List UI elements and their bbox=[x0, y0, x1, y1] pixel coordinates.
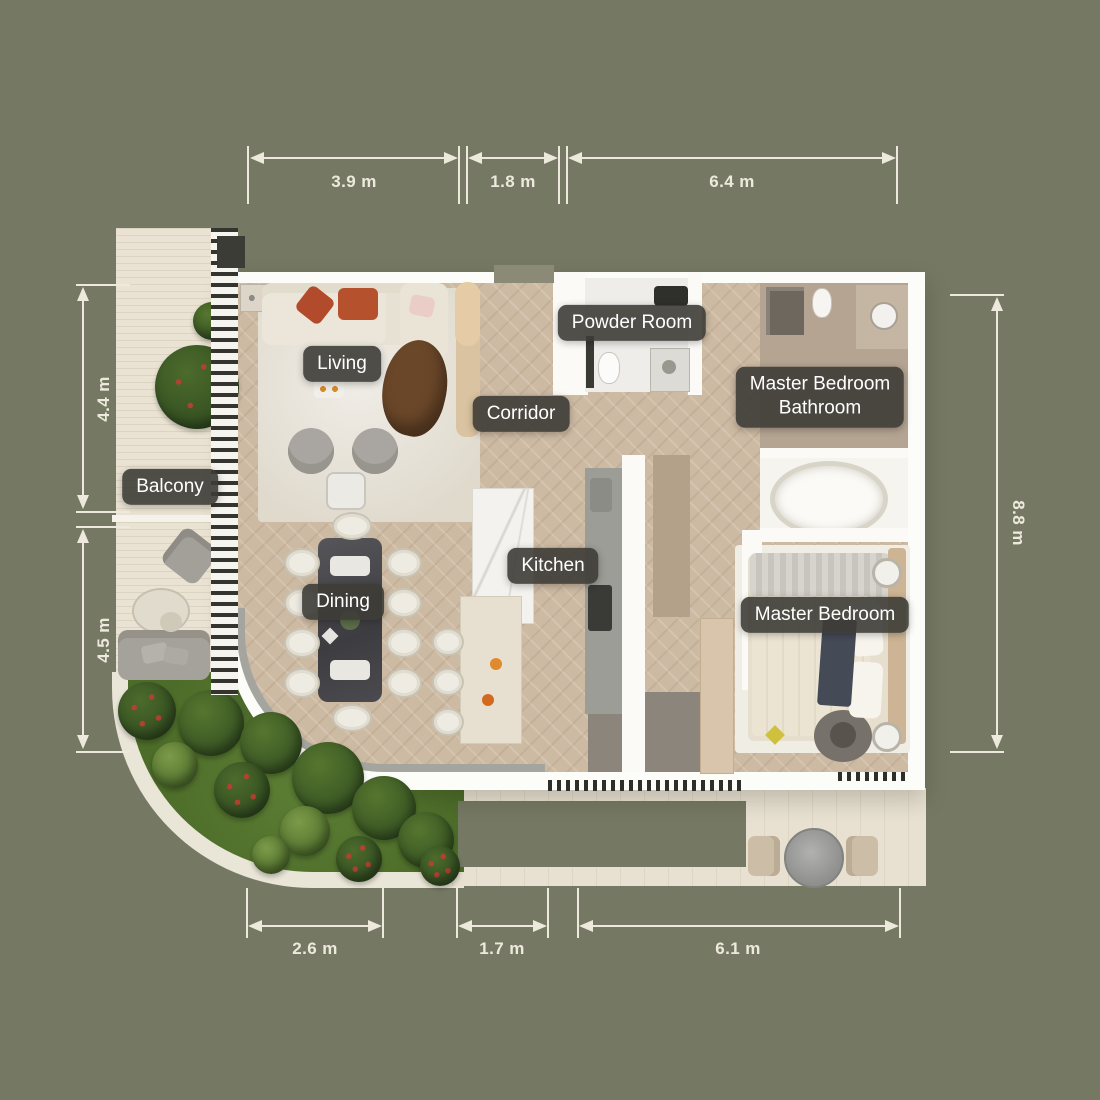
bathroom-shower-glass bbox=[766, 287, 804, 335]
arrowhead bbox=[885, 920, 899, 932]
room-label-master-bedroom: Master Bedroom bbox=[741, 597, 909, 633]
kitchen-stool bbox=[432, 628, 464, 656]
arrowhead bbox=[77, 529, 89, 543]
terrace-table bbox=[784, 828, 844, 888]
louver-dark-block bbox=[217, 236, 245, 268]
hallway-cabinet bbox=[700, 618, 734, 774]
kitchen-island-lower bbox=[460, 596, 522, 744]
balcony-divider-wall bbox=[112, 515, 225, 522]
dining-chair bbox=[284, 548, 320, 578]
room-label-text: Dining bbox=[316, 591, 370, 612]
room-label-dining: Dining bbox=[302, 584, 384, 620]
entry-threshold bbox=[494, 265, 554, 283]
arrowhead bbox=[248, 920, 262, 932]
dim-line-3-9m bbox=[252, 157, 456, 159]
dim-label-right-0: 8.8 m bbox=[1008, 500, 1028, 545]
dim-extension-line bbox=[558, 146, 560, 204]
arrowhead bbox=[991, 735, 1003, 749]
vanity-basin bbox=[870, 302, 898, 330]
sofa-pillow-rust bbox=[338, 288, 378, 320]
toilet bbox=[598, 352, 620, 384]
dim-line-2-6m bbox=[250, 925, 380, 927]
dim-label-bottom-0: 2.6 m bbox=[292, 939, 337, 959]
room-label-text-line1: Master Bedroom bbox=[750, 373, 890, 397]
dining-chair bbox=[386, 548, 422, 578]
dim-extension-line bbox=[899, 888, 901, 938]
garden-tree bbox=[118, 682, 176, 740]
dim-label-left-0: 4.4 m bbox=[94, 376, 114, 421]
dim-extension-line bbox=[76, 284, 130, 286]
louver-slat-wall bbox=[211, 228, 238, 695]
room-label-text: Master Bedroom bbox=[755, 604, 895, 625]
dim-extension-line bbox=[950, 294, 1004, 296]
kitchen-stool bbox=[432, 708, 464, 736]
dining-chair bbox=[332, 512, 372, 540]
room-label-text: Corridor bbox=[487, 403, 556, 424]
room-label-balcony: Balcony bbox=[122, 469, 218, 505]
dining-chair bbox=[284, 668, 320, 698]
room-label-text: Living bbox=[317, 353, 367, 374]
garden-tree bbox=[214, 762, 270, 818]
arrowhead bbox=[544, 152, 558, 164]
room-label-text-line2: Bathroom bbox=[750, 397, 890, 421]
dim-extension-line bbox=[76, 751, 130, 753]
terrace-opening bbox=[458, 801, 746, 867]
dim-line-6-1m bbox=[581, 925, 897, 927]
dim-extension-line bbox=[950, 751, 1004, 753]
garden-bush bbox=[252, 836, 290, 874]
garden-tree bbox=[336, 836, 382, 882]
balcony-side-table bbox=[160, 612, 182, 632]
dining-chair bbox=[386, 668, 422, 698]
powder-door-strip bbox=[586, 336, 594, 388]
dining-place-setting bbox=[330, 556, 370, 576]
dim-line-4-5m bbox=[82, 531, 84, 747]
dining-chair bbox=[386, 588, 422, 618]
kitchen-fruit bbox=[490, 658, 502, 670]
kitchen-stool bbox=[432, 668, 464, 696]
washbasin bbox=[654, 286, 688, 306]
media-console bbox=[314, 380, 344, 398]
arrowhead bbox=[568, 152, 582, 164]
garden-tree bbox=[420, 846, 460, 886]
dim-label-top-1: 1.8 m bbox=[490, 172, 535, 192]
arrowhead bbox=[991, 297, 1003, 311]
room-label-living: Living bbox=[303, 346, 381, 382]
bedroom-window-sill bbox=[838, 772, 906, 781]
dim-line-8-8m bbox=[996, 299, 998, 747]
dim-extension-line bbox=[76, 511, 130, 513]
coffee-table bbox=[326, 472, 366, 510]
kitchen-partition-wall bbox=[622, 455, 645, 772]
dim-extension-line bbox=[247, 146, 249, 204]
room-label-text: Kitchen bbox=[521, 555, 584, 576]
room-label-text: Balcony bbox=[136, 476, 204, 497]
dim-label-top-2: 6.4 m bbox=[709, 172, 754, 192]
arrowhead bbox=[77, 735, 89, 749]
dining-place-setting-2 bbox=[330, 660, 370, 680]
dim-line-6-4m bbox=[570, 157, 894, 159]
dim-extension-line bbox=[76, 526, 130, 528]
kitchen-fruit-2 bbox=[482, 694, 494, 706]
arrowhead bbox=[579, 920, 593, 932]
terrace-railing bbox=[548, 780, 746, 791]
garden-bush bbox=[152, 742, 198, 788]
dim-label-bottom-1: 1.7 m bbox=[479, 939, 524, 959]
dim-line-4-4m bbox=[82, 289, 84, 507]
balcony-sofa-cushion-2 bbox=[163, 646, 189, 665]
shower-drain bbox=[662, 360, 676, 374]
dim-line-1-7m bbox=[460, 925, 545, 927]
dim-label-bottom-2: 6.1 m bbox=[715, 939, 760, 959]
arrowhead bbox=[368, 920, 382, 932]
arrowhead bbox=[444, 152, 458, 164]
bed-knit-throw bbox=[750, 553, 890, 597]
arrowhead bbox=[77, 495, 89, 509]
kitchen-sink bbox=[590, 478, 612, 512]
dim-label-left-1: 4.5 m bbox=[94, 617, 114, 662]
dim-extension-line bbox=[382, 888, 384, 938]
room-label-powder-room: Powder Room bbox=[558, 305, 706, 341]
room-label-text: Powder Room bbox=[572, 312, 692, 333]
dim-line-1-8m bbox=[470, 157, 556, 159]
bathroom-toilet bbox=[812, 288, 832, 318]
dim-extension-line bbox=[896, 146, 898, 204]
kitchen-cooktop bbox=[588, 585, 612, 631]
room-label-kitchen: Kitchen bbox=[507, 548, 598, 584]
bathtub bbox=[770, 461, 888, 537]
dim-extension-line bbox=[458, 146, 460, 204]
nightstand-lamp-bottom bbox=[872, 722, 902, 752]
bath-wall-upper bbox=[760, 448, 908, 458]
floor-plan-canvas: Living Corridor Powder Room Master Bedro… bbox=[0, 0, 1100, 1100]
terrace-chair-right bbox=[846, 836, 878, 876]
dining-chair bbox=[332, 704, 372, 732]
dining-chair bbox=[284, 628, 320, 658]
dim-label-top-0: 3.9 m bbox=[331, 172, 376, 192]
arrowhead bbox=[77, 287, 89, 301]
armchair-left bbox=[288, 428, 334, 474]
nightstand-lamp-top bbox=[872, 558, 902, 588]
bed-pillow-2 bbox=[849, 661, 884, 719]
kitchen-tall-cabinet bbox=[653, 455, 690, 617]
bedroom-pouf bbox=[830, 722, 856, 748]
floor-curb-extension bbox=[390, 764, 545, 772]
arrowhead bbox=[458, 920, 472, 932]
arrowhead bbox=[882, 152, 896, 164]
terrace-chair-left bbox=[748, 836, 780, 876]
arrowhead bbox=[468, 152, 482, 164]
dining-chair bbox=[386, 628, 422, 658]
armchair-right bbox=[352, 428, 398, 474]
entry-bench bbox=[455, 282, 480, 346]
room-label-corridor: Corridor bbox=[473, 396, 570, 432]
bath-bedroom-wall bbox=[760, 528, 908, 542]
dim-extension-line bbox=[547, 888, 549, 938]
arrowhead bbox=[250, 152, 264, 164]
room-label-master-bathroom: Master Bedroom Bathroom bbox=[736, 367, 904, 428]
arrowhead bbox=[533, 920, 547, 932]
